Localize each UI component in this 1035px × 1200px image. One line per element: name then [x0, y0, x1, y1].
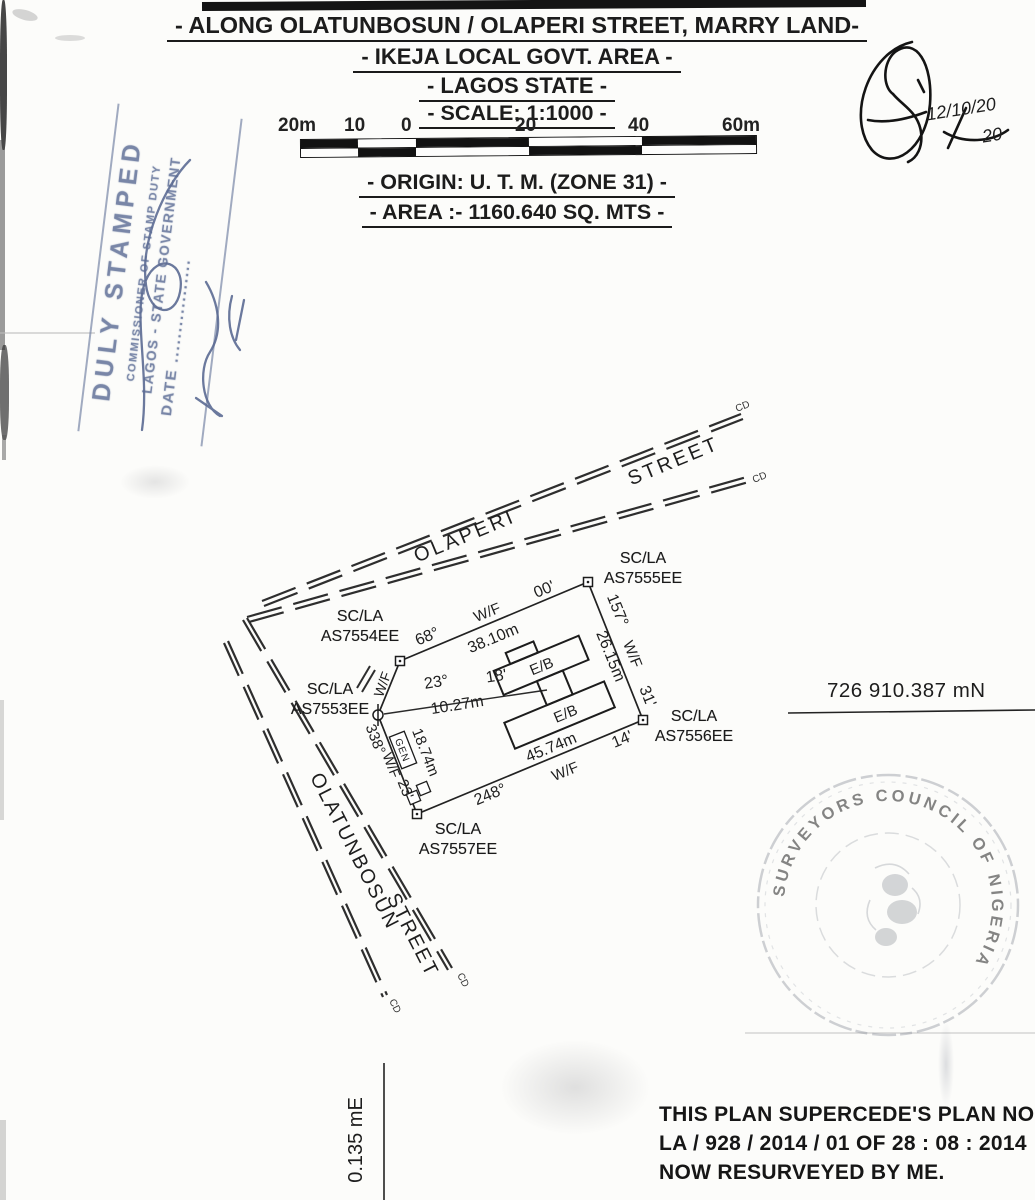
- edge-top-minutes: 00': [531, 578, 557, 602]
- surveyors-council-seal: SURVEYORS COUNCIL OF NIGERIA: [758, 775, 1018, 1035]
- footer-line2: LA / 928 / 2014 / 01 OF 28 : 08 : 2014: [659, 1129, 1035, 1158]
- edge-bottom-wf: W/F: [549, 759, 581, 785]
- beacon-label-AS7556EE: SC/LA AS7556EE: [646, 707, 742, 747]
- beacon-prefix: SC/LA: [310, 607, 410, 627]
- beacon-prefix: SC/LA: [598, 549, 688, 569]
- edge-right-minutes: 31': [635, 683, 659, 709]
- footer-note: THIS PLAN SUPERCEDE'S PLAN NO LA / 928 /…: [659, 1100, 1035, 1187]
- edge-cross-distance: 10.27m: [430, 693, 485, 718]
- beacon-number: AS7555EE: [598, 569, 688, 589]
- street-end-mark: CD: [751, 470, 769, 486]
- beacon-label-AS7553EE: SC/LA AS7553EE: [283, 680, 377, 720]
- plot-boundary: [378, 582, 643, 814]
- street-end-mark: CD: [386, 997, 402, 1015]
- edge-top-wf: W/F: [471, 600, 503, 626]
- edge-west-distance: 18.74m: [408, 726, 442, 779]
- edge-west-bearing: 338°: [362, 722, 389, 757]
- street-end-mark: CD: [454, 971, 470, 989]
- edge-right-distance: 26.15m: [592, 628, 628, 684]
- edge-right-bearing: 157°: [603, 592, 631, 629]
- street-end-mark: CD: [734, 399, 752, 415]
- beacon-markers: [373, 578, 648, 819]
- beacon-prefix: SC/LA: [411, 820, 505, 840]
- beacon-label-AS7557EE: SC/LA AS7557EE: [411, 820, 505, 860]
- edge-bottom-bearing: 248°: [472, 781, 509, 809]
- edge-cross-bearing: 23°: [423, 672, 450, 693]
- footer-line1: THIS PLAN SUPERCEDE'S PLAN NO: [659, 1100, 1035, 1129]
- edge-cross-minutes: 18': [485, 667, 508, 687]
- beacon-label-AS7555EE: SC/LA AS7555EE: [598, 549, 688, 589]
- grid-line-north: [788, 710, 1035, 713]
- beacon-number: AS7557EE: [411, 840, 505, 860]
- footer-line3: NOW RESURVEYED BY ME.: [659, 1158, 1035, 1187]
- signature-date-sub: 20: [980, 124, 1004, 147]
- edge-top-distance: 38.10m: [465, 621, 521, 657]
- grid-north-label: 726 910.387 mN: [827, 679, 986, 703]
- seal-emblem: [875, 874, 917, 946]
- beacon-prefix: SC/LA: [283, 680, 377, 700]
- beacon-number: AS7554EE: [310, 627, 410, 647]
- beacon-label-AS7554EE: SC/LA AS7554EE: [310, 607, 410, 647]
- beacon-number: AS7553EE: [283, 700, 377, 720]
- beacon-prefix: SC/LA: [646, 707, 742, 727]
- stamp-signature-scribble: [140, 160, 244, 430]
- grid-east-label: 0.135 mE: [345, 1097, 367, 1183]
- beacon-number: AS7556EE: [646, 727, 742, 747]
- survey-plan-document: - ALONG OLATUNBOSUN / OLAPERI STREET, MA…: [0, 0, 1035, 1200]
- survey-plan-drawing: 12/10/20 20 CD CD CD CD OLAPERI STREET O…: [0, 0, 1035, 1200]
